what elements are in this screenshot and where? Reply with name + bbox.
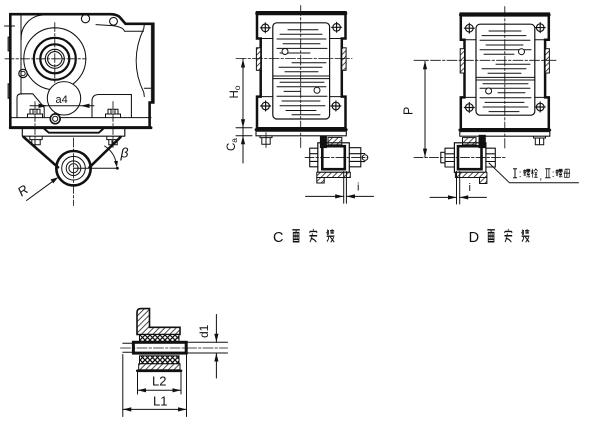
svg-text:a4: a4: [56, 94, 68, 106]
svg-text:i: i: [357, 182, 359, 194]
svg-text::: :: [519, 169, 522, 180]
svg-text::: :: [552, 169, 555, 180]
svg-text:L2: L2: [152, 374, 166, 389]
svg-text:β: β: [120, 145, 129, 161]
svg-text:,: ,: [539, 172, 542, 183]
svg-text:D: D: [469, 230, 479, 246]
svg-text:L1: L1: [153, 394, 167, 409]
svg-text:i: i: [469, 182, 471, 194]
svg-text:d1: d1: [197, 324, 211, 338]
svg-text:C: C: [273, 230, 283, 246]
svg-text:P: P: [402, 107, 416, 115]
